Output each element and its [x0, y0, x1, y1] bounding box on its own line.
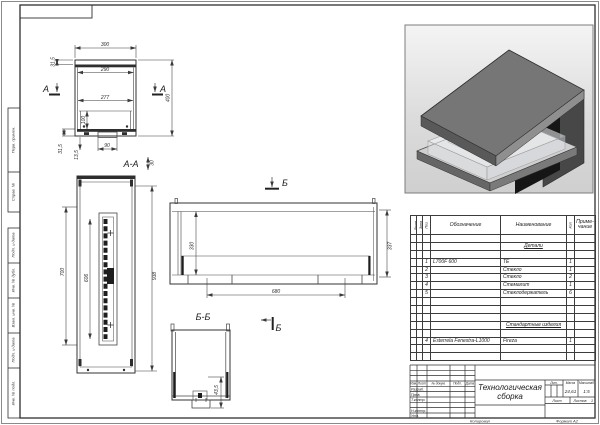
margin-graph-labels: Перв. примен. Справ. № Подп. и дата Инв.… — [11, 127, 16, 406]
spec-col-pos: Поз. — [423, 216, 431, 235]
margin-label: Подп. и дата — [11, 232, 16, 258]
tb-col-izm: Изм. — [410, 382, 417, 386]
dim-606: 606 — [84, 274, 90, 283]
dim-31-5-bottom: 31,5 — [58, 144, 64, 154]
dim-938: 938 — [152, 272, 158, 281]
spec-col-name: Наименование — [501, 216, 567, 235]
spec-row-empty — [411, 329, 596, 337]
section-letter-a: А — [159, 84, 166, 94]
tb-scale-value: 1:5 — [583, 389, 590, 394]
spec-row-empty — [411, 306, 596, 314]
tb-mass-value: 24,61 — [564, 389, 577, 394]
tb-row-razrab: Разраб. — [411, 388, 424, 392]
spec-row-empty — [411, 298, 596, 306]
section-mark-b-bottom: Б — [261, 317, 282, 333]
tb-row-nkontr: Н.контр. — [411, 409, 426, 413]
tb-lit-label: Лит. — [549, 381, 558, 385]
dim-13-5: 13,5 — [74, 150, 80, 160]
dim-400: 400 — [166, 94, 172, 103]
margin-label: Инв. № подл. — [11, 381, 16, 406]
margin-label: Перв. примен. — [11, 127, 16, 154]
dim-680: 680 — [272, 289, 281, 295]
dim-700: 700 — [60, 268, 66, 277]
tb-row-utv: Утв. — [411, 414, 419, 418]
dim-337: 337 — [388, 242, 394, 251]
dim-290: 290 — [100, 67, 110, 73]
tb-col-data: Дата — [465, 382, 475, 386]
spec-header-row: Форм. Зона Поз. Обозначение Наименование… — [411, 216, 596, 235]
dim-277: 277 — [100, 95, 110, 101]
copied-label: Копировал — [470, 419, 491, 424]
spec-col-qty: Кол. — [567, 216, 575, 235]
section-mark-a: А А — [42, 83, 166, 95]
dim-90: 90 — [104, 143, 110, 149]
margin-label: Взам. инв. № — [11, 302, 16, 327]
tb-col-podp: Подп. — [453, 382, 462, 386]
view-section-aa: А-А 30 700 606 938 — [60, 157, 158, 373]
spec-table: Форм. Зона Поз. Обозначение Наименование… — [410, 215, 596, 361]
spec-col-designation: Обозначение — [431, 216, 501, 235]
view-section-bb: Б-Б 43,5 — [171, 312, 230, 408]
section-letter-a: А — [42, 84, 49, 94]
tb-sheets-value: 1 — [591, 399, 593, 403]
drawing-sheet: Перв. примен. Справ. № Подп. и дата Инв.… — [0, 0, 600, 425]
spec-item-row: 3Стекло2 — [411, 274, 596, 282]
tb-col-docnum: № докум. — [431, 382, 445, 386]
tb-mass-label: Масса — [566, 381, 576, 385]
spec-item-row: 2Стекло1 — [411, 266, 596, 274]
dim-31-5-top: 31,5 — [51, 57, 57, 67]
format-label: Формат А2 — [556, 419, 579, 424]
section-letter-b: Б — [276, 323, 282, 333]
spec-row-empty — [411, 235, 596, 243]
dim-300: 300 — [101, 42, 110, 48]
dim-43-5: 43,5 — [214, 385, 220, 395]
margin-label: Инв. № дубл. — [11, 268, 16, 293]
tb-col-list: Лист — [417, 382, 427, 386]
dim-100: 100 — [81, 116, 87, 125]
spec-row-empty — [411, 345, 596, 353]
spec-section-row: Стандартные изделия — [411, 321, 596, 329]
section-letter-b: Б — [282, 178, 288, 188]
burner-logo-plate — [107, 268, 114, 284]
view-long-b: Б 330 337 680 Б — [170, 177, 394, 333]
spec-row-empty — [411, 250, 596, 258]
spec-item-row: 5Стеклодержатель6 — [411, 290, 596, 298]
dim-330: 330 — [190, 242, 196, 251]
document-title: Технологическая сборка — [476, 381, 544, 404]
section-mark-b-top: Б — [265, 177, 288, 189]
dim-30: 30 — [150, 160, 156, 166]
dimension-lines — [55, 45, 174, 151]
tb-sheet-label: Лист — [551, 399, 561, 403]
spec-item-row: 4Стемалит1 — [411, 282, 596, 290]
tb-sheets-label: Листов — [572, 399, 586, 403]
tb-row-prov: Пров. — [411, 393, 420, 397]
margin-label: Справ. № — [11, 182, 16, 201]
section-title-bb: Б-Б — [196, 312, 211, 322]
spec-item-row: 1L700F 600ТЕ1 — [411, 258, 596, 266]
view-front: 300 31,5 290 277 100 90 13,5 31,5 400 А … — [42, 42, 174, 160]
spec-section-row: Детали — [411, 242, 596, 250]
margin-graph-boxes — [8, 108, 20, 418]
tb-row-tkontr: Т.контр. — [411, 398, 426, 402]
section-title-aa: А-А — [122, 159, 138, 169]
spec-row-empty — [411, 353, 596, 361]
margin-label: Подп. и дата — [11, 337, 16, 363]
tb-scale-label: Масштаб — [579, 381, 594, 385]
top-left-stamp-box — [20, 5, 92, 18]
drawing-canvas: Перв. примен. Справ. № Подп. и дата Инв.… — [0, 0, 600, 425]
spec-row-empty — [411, 313, 596, 321]
spec-col-note: Приме-чание — [575, 216, 596, 235]
spec-item-row: 4Esterrela Fenestra-L1000Fireza1 — [411, 337, 596, 345]
render-3d-panel — [405, 25, 593, 194]
